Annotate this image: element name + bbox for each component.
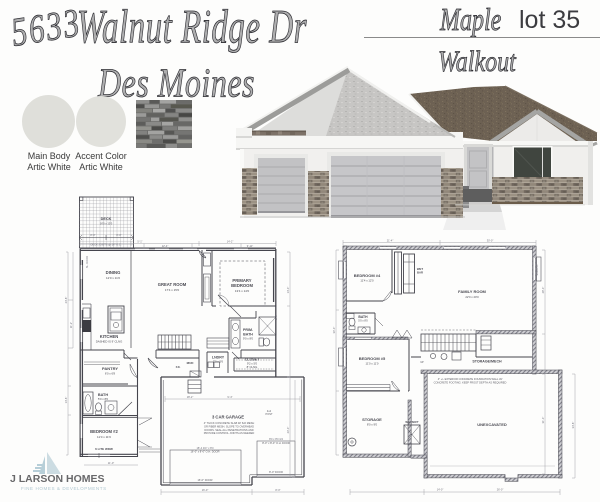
svg-text:POST: POST bbox=[265, 412, 272, 416]
svg-text:STORAGE: STORAGE bbox=[362, 417, 382, 422]
svg-text:11'-0": 11'-0" bbox=[108, 461, 114, 465]
svg-text:9'-11": 9'-11" bbox=[247, 244, 253, 248]
svg-text:DASHED IS 9' CLNG: DASHED IS 9' CLNG bbox=[96, 340, 123, 344]
svg-text:9'-4": 9'-4" bbox=[227, 395, 232, 399]
svg-text:BEDROOM: BEDROOM bbox=[231, 283, 253, 288]
svg-text:28'-0": 28'-0" bbox=[541, 287, 545, 294]
svg-text:16'-0" DOOR: 16'-0" DOOR bbox=[197, 478, 212, 482]
svg-text:13'4 x 14'0: 13'4 x 14'0 bbox=[235, 289, 250, 293]
svg-text:PRIM.: PRIM. bbox=[243, 328, 253, 332]
svg-text:9'0 x 8'0: 9'0 x 8'0 bbox=[243, 337, 254, 341]
svg-text:MUD: MUD bbox=[187, 361, 195, 365]
svg-text:3 CAR GARAGE: 3 CAR GARAGE bbox=[212, 415, 244, 420]
svg-text:30'-0": 30'-0" bbox=[487, 239, 494, 243]
svg-text:8'0 x 8'0 3/4: 8'0 x 8'0 3/4 bbox=[269, 437, 283, 441]
svg-text:CONCRETE FOOTING. KEEP FROST D: CONCRETE FOOTING. KEEP FROST DEPTH AS RE… bbox=[434, 381, 507, 385]
svg-text:17'4 x 15'0: 17'4 x 15'0 bbox=[165, 288, 180, 292]
svg-text:30'-0": 30'-0" bbox=[332, 327, 336, 334]
svg-text:11'0 x 11'0: 11'0 x 11'0 bbox=[366, 362, 379, 366]
svg-text:14'-2": 14'-2" bbox=[227, 240, 234, 244]
svg-text:8'-0": 8'-0" bbox=[90, 233, 95, 237]
svg-text:DINING: DINING bbox=[106, 270, 121, 275]
svg-text:5'0 x 8'0: 5'0 x 8'0 bbox=[98, 397, 109, 401]
svg-text:6 LITE WDW: 6 LITE WDW bbox=[95, 447, 113, 451]
svg-text:UNEXCAVATED: UNEXCAVATED bbox=[477, 422, 507, 427]
svg-text:5'0 x 8'0: 5'0 x 8'0 bbox=[358, 319, 368, 323]
svg-text:16'0 x 12'0: 16'0 x 12'0 bbox=[100, 222, 113, 226]
svg-text:12'0 x 11'0: 12'0 x 11'0 bbox=[106, 276, 120, 280]
svg-text:SL. DOOR: SL. DOOR bbox=[85, 256, 89, 269]
svg-text:BEDROOM #5: BEDROOM #5 bbox=[359, 356, 386, 361]
svg-text:11'0 x 11'6: 11'0 x 11'6 bbox=[97, 435, 111, 439]
svg-text:14'-0": 14'-0" bbox=[286, 287, 290, 294]
svg-text:UP: UP bbox=[420, 361, 424, 364]
svg-text:8'-0": 8'-0" bbox=[116, 233, 121, 237]
svg-text:12'-4": 12'-4" bbox=[162, 244, 169, 248]
svg-text:PROVIDE CONTROL JOINTS AS NEED: PROVIDE CONTROL JOINTS AS NEEDED bbox=[204, 431, 255, 435]
svg-text:8'0 x 9'0: 8'0 x 9'0 bbox=[367, 423, 378, 427]
svg-text:PANTRY: PANTRY bbox=[102, 366, 118, 371]
svg-text:STORAGE/MECH: STORAGE/MECH bbox=[472, 360, 502, 364]
svg-text:31'-0": 31'-0" bbox=[541, 417, 545, 424]
svg-text:EGRESS: EGRESS bbox=[535, 264, 539, 275]
svg-text:BAR: BAR bbox=[417, 271, 423, 275]
svg-text:23'-0": 23'-0" bbox=[286, 427, 290, 434]
svg-text:11'4 x 12'0: 11'4 x 12'0 bbox=[360, 279, 374, 283]
svg-text:18'-4 3/4" x 8'0: 18'-4 3/4" x 8'0 bbox=[196, 446, 214, 450]
svg-text:7'0 x 5'6: 7'0 x 5'6 bbox=[213, 360, 224, 364]
svg-text:24'-8": 24'-8" bbox=[64, 297, 68, 304]
svg-text:14'-0": 14'-0" bbox=[437, 488, 444, 492]
svg-text:18'-2": 18'-2" bbox=[187, 395, 194, 399]
svg-text:21'-4": 21'-4" bbox=[387, 239, 394, 243]
svg-text:22'0 x 20'0: 22'0 x 20'0 bbox=[465, 295, 479, 299]
svg-text:8'-0" DOOR: 8'-0" DOOR bbox=[269, 470, 283, 474]
svg-text:OR FIBER MESH. SLOPE TO OVERHE: OR FIBER MESH. SLOPE TO OVERHEAD bbox=[204, 424, 254, 428]
svg-text:8' CLNG: 8' CLNG bbox=[247, 365, 258, 369]
svg-text:DECK: DECK bbox=[101, 217, 112, 221]
svg-text:8'-0" x 8'-0" O.H. DOOR: 8'-0" x 8'-0" O.H. DOOR bbox=[262, 441, 290, 445]
svg-text:W.H./SOFT: W.H./SOFT bbox=[405, 420, 419, 424]
svg-text:BATH: BATH bbox=[358, 315, 368, 319]
svg-text:8'-0": 8'-0" bbox=[275, 488, 280, 492]
svg-text:5'-1": 5'-1" bbox=[137, 240, 142, 244]
svg-text:DECK JOISTS @ 16" O.C.: DECK JOISTS @ 16" O.C. bbox=[91, 243, 122, 247]
svg-text:F.D.: F.D. bbox=[176, 365, 181, 369]
svg-text:KITCHEN: KITCHEN bbox=[100, 334, 119, 339]
svg-text:4" THICK CONCRETE SLAB W/ 6x6: 4" THICK CONCRETE SLAB W/ 6x6 MESH bbox=[204, 421, 255, 425]
svg-text:BEDROOM #2: BEDROOM #2 bbox=[90, 429, 118, 434]
svg-text:BEDROOM #4: BEDROOM #4 bbox=[354, 273, 381, 278]
svg-text:14'-6": 14'-6" bbox=[64, 397, 68, 404]
svg-text:5'-0": 5'-0" bbox=[274, 314, 278, 319]
svg-text:11'-2": 11'-2" bbox=[69, 322, 73, 328]
svg-text:GREAT ROOM: GREAT ROOM bbox=[158, 282, 187, 287]
svg-text:6'0 x 6'8: 6'0 x 6'8 bbox=[105, 372, 116, 376]
svg-text:16'-0": 16'-0" bbox=[202, 488, 209, 492]
svg-text:4" +/- EXTERIOR CONCRETE FOUND: 4" +/- EXTERIOR CONCRETE FOUNDATION WALL… bbox=[438, 377, 503, 381]
svg-text:26'-0": 26'-0" bbox=[497, 488, 504, 492]
svg-text:DOORS. SEAL ALL PENETRATIONS A: DOORS. SEAL ALL PENETRATIONS AND bbox=[204, 428, 253, 432]
svg-text:FAMILY ROOM: FAMILY ROOM bbox=[458, 289, 486, 294]
svg-text:16'-0" x 8'-0" O.H. DOOR: 16'-0" x 8'-0" O.H. DOOR bbox=[190, 450, 219, 454]
svg-text:34'-8": 34'-8" bbox=[571, 422, 575, 429]
